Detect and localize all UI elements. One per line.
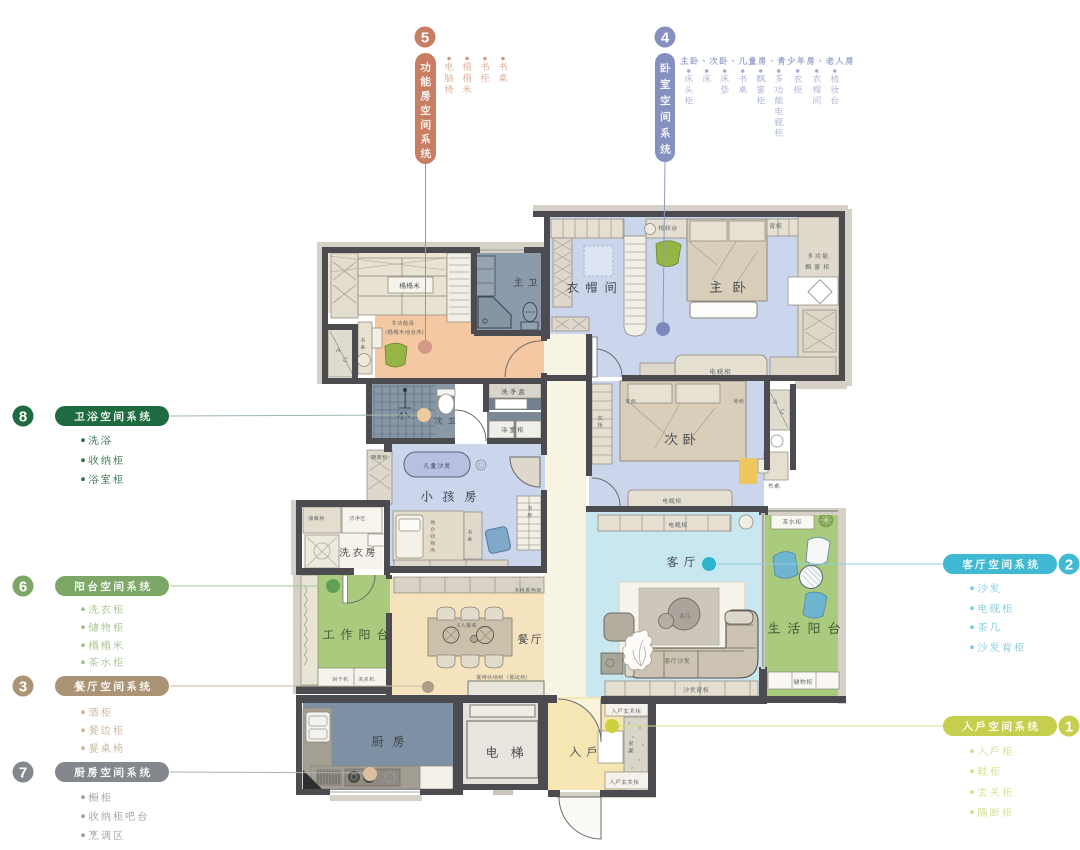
svg-text:3: 3 bbox=[19, 679, 27, 696]
svg-text:A: A bbox=[335, 347, 340, 354]
svg-text:C: C bbox=[343, 357, 348, 364]
svg-text:C: C bbox=[780, 409, 785, 416]
svg-text:1: 1 bbox=[1065, 719, 1073, 736]
svg-text:4: 4 bbox=[661, 30, 670, 47]
svg-text:5: 5 bbox=[421, 30, 429, 47]
svg-text:A: A bbox=[772, 399, 777, 406]
svg-text:6: 6 bbox=[19, 579, 27, 596]
svg-text:7: 7 bbox=[19, 765, 27, 782]
svg-text:2: 2 bbox=[1065, 557, 1073, 574]
svg-text:8: 8 bbox=[19, 409, 27, 426]
